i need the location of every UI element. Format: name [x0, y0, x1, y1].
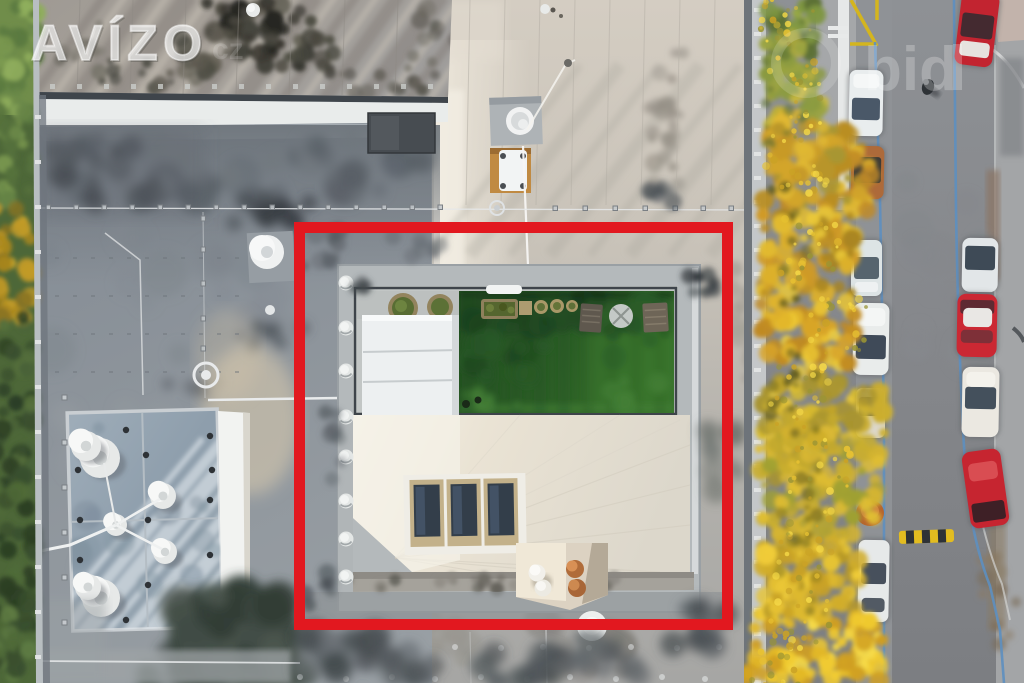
svg-text:cz: cz	[212, 33, 244, 66]
svg-text:AVÍZO: AVÍZO	[31, 15, 208, 71]
svg-text:bid: bid	[864, 35, 957, 104]
